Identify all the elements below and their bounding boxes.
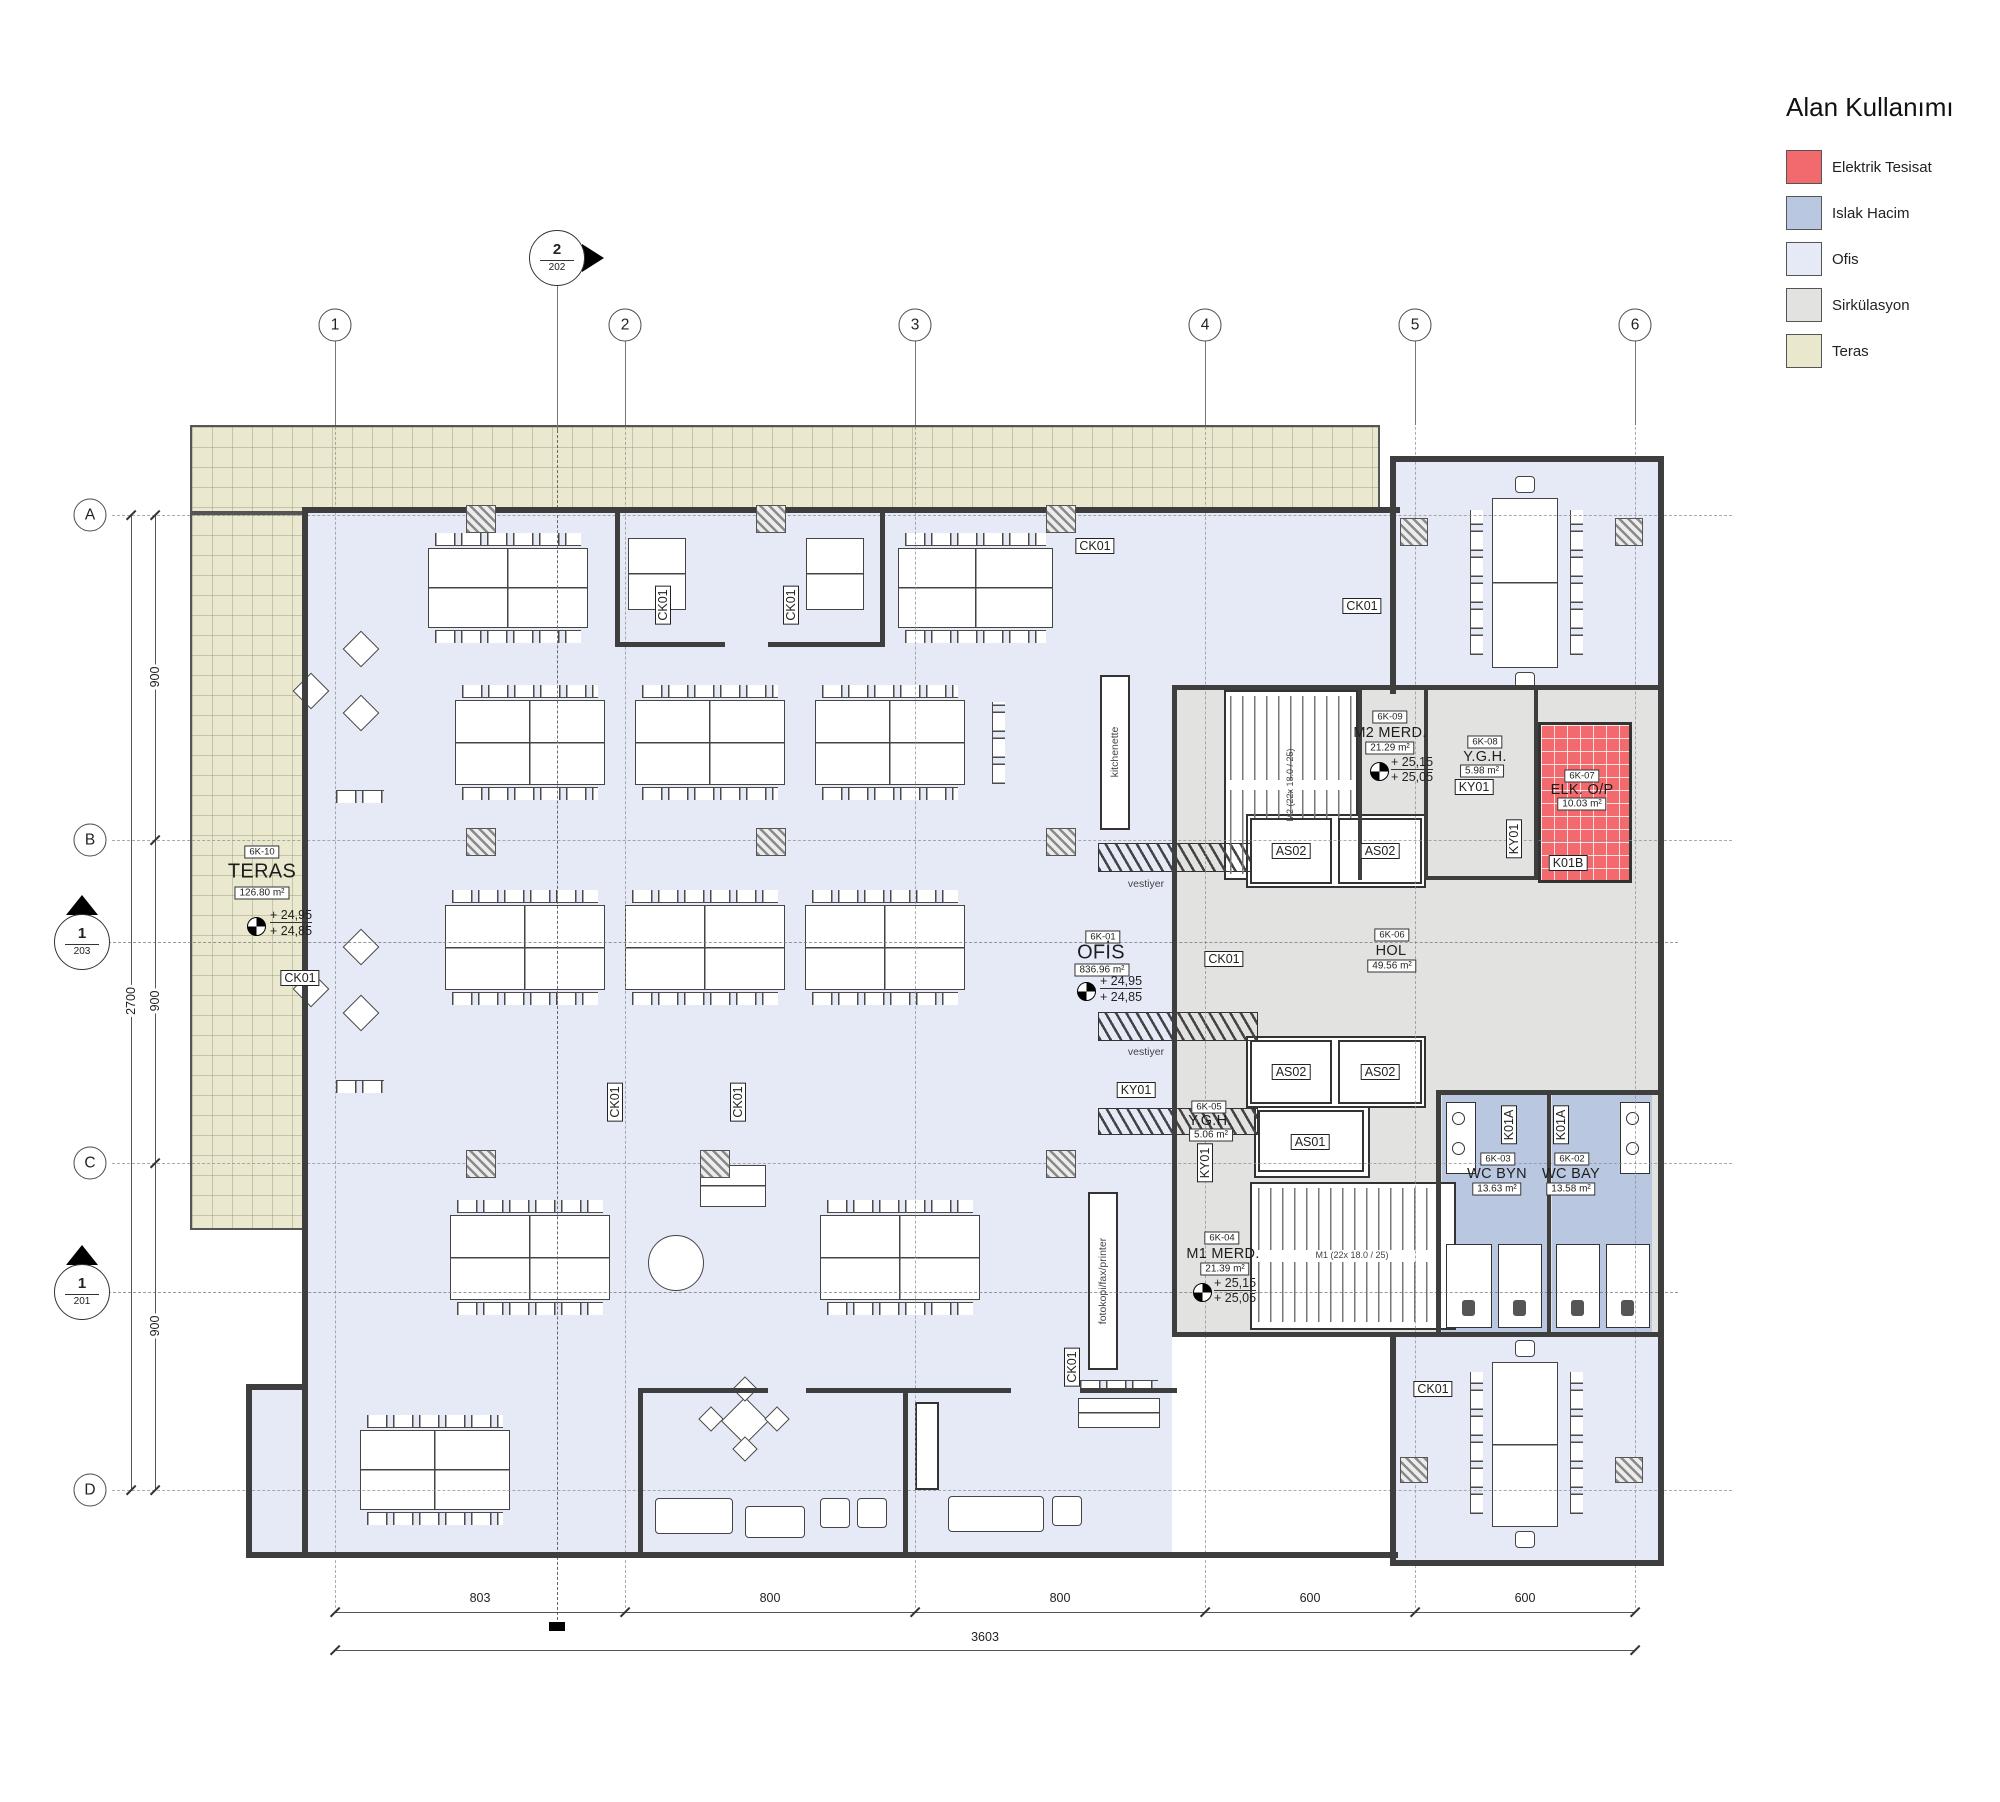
chair-row [1470,1372,1483,1514]
room-wall [1424,690,1428,880]
section-sheet: 202 [549,261,566,275]
dimension-total-label: 3603 [969,1630,1001,1644]
column-pier [1400,1457,1428,1483]
level-marker-icon [1077,982,1096,1001]
elevation-upper: + 25,15 [1214,1276,1256,1291]
wc-wall [1547,1095,1551,1335]
conference-table [1492,498,1558,668]
section-arrow-icon [66,1245,98,1265]
room-name: WC BAY [1542,1166,1600,1182]
toilet [1621,1300,1634,1316]
dimension-label: 803 [468,1591,493,1605]
room-wall [638,1388,768,1393]
column-pier [1046,505,1076,533]
door-tag: K01B [1549,855,1588,871]
room-wall [1424,876,1538,880]
elevation-lower: + 25,05 [1391,770,1433,784]
room-code: 6K-10 [244,846,279,859]
chair-row [1570,1372,1583,1514]
chair-row [992,702,1005,784]
room-name: M2 MERD. [1353,725,1426,741]
room-name: Y.G.H. [1188,1113,1231,1129]
chair [1515,1531,1535,1548]
door-tag: KY01 [1197,1144,1213,1183]
room-wall [880,507,885,647]
door-tag: CK01 [1342,598,1381,614]
elevator-tag: AS02 [1361,1064,1400,1080]
room-area: 5.98 m² [1460,765,1504,778]
dimension-label: 600 [1513,1591,1538,1605]
column-pier [466,505,496,533]
grid-bubble-C: C [74,1147,107,1180]
section-number: 1 [65,925,100,945]
room-area: 21.29 m² [1365,742,1414,755]
section-number: 2 [540,241,575,261]
desk-cluster [898,548,1053,628]
desk-cluster [820,1215,980,1300]
room-code: 6K-02 [1554,1153,1589,1166]
coat-rack [1098,1012,1258,1041]
dimension-total-label: 2700 [124,985,138,1017]
elevation-upper: + 24,95 [270,908,312,923]
sink [1452,1142,1465,1155]
door-tag: K01A [1501,1106,1517,1145]
section-line-201 [108,1292,1678,1293]
sink [1452,1112,1465,1125]
door-tag: KY01 [1506,820,1522,859]
legend-swatch-elektrik [1786,150,1822,184]
room-name: WC BYN [1467,1166,1527,1182]
legend-label: Ofis [1832,251,1859,268]
door-tag: CK01 [1075,538,1114,554]
coat-rack [1098,1108,1258,1135]
floor-plan-canvas: 1 2 3 4 5 6 A B C D 2 202 1 203 1 201 [0,0,2000,1802]
section-marker-201: 1 201 [54,1264,110,1320]
wall-segment [302,507,308,1558]
room-wall [806,1388,1011,1393]
stair-note-m2: M2 (22x 18.0 / 25) [1285,748,1295,821]
copier-label: fotokopi/fax/printer [1097,1238,1109,1324]
wall-segment [1390,1332,1396,1566]
level-marker-icon [1370,762,1389,781]
office-desk [806,538,864,610]
room-code: 6K-03 [1480,1153,1515,1166]
grid-line-4 [1205,342,1206,1608]
wall-segment [1390,456,1664,462]
column-pier [1046,1150,1076,1178]
level-marker-icon [247,917,266,936]
elevation-upper: + 25,15 [1391,755,1433,770]
dimension-label: 900 [148,1314,162,1339]
legend-swatch-sirkulasyon [1786,288,1822,322]
elevation-lower: + 24,85 [270,924,312,938]
section-number: 1 [65,1275,100,1295]
door-tag: CK01 [730,1082,746,1121]
level-marker-icon [1193,1283,1212,1302]
grid-bubble-5: 5 [1399,309,1432,342]
legend-title: Alan Kullanımı [1786,92,1954,123]
room-wall [1534,690,1538,880]
room-area: 21.39 m² [1200,1263,1249,1276]
elevator-tag: AS02 [1361,843,1400,859]
stair-note-m1: M1 (22x 18.0 / 25) [1315,1250,1388,1260]
grid-stem [1635,341,1636,425]
grid-bubble-4: 4 [1189,309,1222,342]
column-pier [1046,828,1076,856]
legend-label: Teras [1832,343,1869,360]
desk-cluster [445,905,605,990]
section-arrow-icon [66,895,98,915]
desk-cluster [450,1215,610,1300]
room-code: 6K-09 [1372,711,1407,724]
grid-bubble-3: 3 [899,309,932,342]
door-tag: K01A [1553,1106,1569,1145]
column-pier [756,505,786,533]
wc-wall [1436,1090,1441,1335]
dimension-line [335,1650,1635,1651]
sink [1626,1112,1639,1125]
room-code: 6K-07 [1564,770,1599,783]
door-tag: CK01 [607,1082,623,1121]
chair-row [336,790,384,803]
wall-segment [1390,456,1396,694]
grid-line-B [112,840,1732,841]
chair [1515,1340,1535,1357]
room-wall [638,1388,643,1556]
grid-line-D [112,1490,1732,1491]
wall-segment [1390,1560,1664,1566]
chair-row [336,1080,384,1093]
dimension-label: 900 [148,665,162,690]
legend-swatch-teras [1786,334,1822,368]
core-wall [1172,685,1177,1337]
sofa [745,1506,805,1538]
grid-stem [335,341,336,425]
legend-label: Islak Hacim [1832,205,1910,222]
desk-cluster [805,905,965,990]
door-tag: KY01 [1455,779,1494,795]
column-pier [1400,518,1428,546]
kitchenette-label: kitchenette [1109,727,1121,778]
elevator-tag: AS01 [1291,1134,1330,1150]
vestiyer-label: vestiyer [1128,878,1164,890]
door-tag: KY01 [1117,1082,1156,1098]
room-name: TERAS [228,861,296,884]
sofa [655,1498,733,1534]
wall-segment [1658,456,1664,1566]
legend-swatch-ofis [1786,242,1822,276]
column-pier [1615,1457,1643,1483]
legend-swatch-islak [1786,196,1822,230]
armchair [1052,1496,1082,1526]
grid-bubble-2: 2 [609,309,642,342]
room-area: 49.56 m² [1367,960,1416,973]
room-code: 6K-06 [1374,929,1409,942]
desk-cluster [360,1430,510,1510]
toilet [1571,1300,1584,1316]
dimension-label: 800 [758,1591,783,1605]
wall-segment [246,1552,1398,1558]
core-wall [1172,1332,1664,1337]
grid-bubble-A: A [74,499,107,532]
dimension-label: 800 [1048,1591,1073,1605]
section-line-end-marker [549,1622,565,1631]
room-wall [615,642,725,647]
grid-bubble-1: 1 [319,309,352,342]
section-sheet: 203 [74,945,91,959]
room-code: 6K-08 [1467,736,1502,749]
vestiyer-label: vestiyer [1128,1046,1164,1058]
toilet [1462,1300,1475,1316]
door-tag: CK01 [655,585,671,624]
grid-line-A [112,515,1732,516]
stair-flight [1258,1188,1448,1250]
chair-row [1470,510,1483,655]
wall-segment [246,1384,308,1390]
door-tag: CK01 [783,585,799,624]
door-tag: CK01 [1064,1347,1080,1386]
dimension-label: 900 [148,989,162,1014]
legend-label: Elektrik Tesisat [1832,159,1932,176]
elevation-lower: + 25,05 [1214,1291,1256,1305]
room-area: 13.58 m² [1546,1183,1595,1196]
grid-stem [915,341,916,425]
room-wall [615,507,620,647]
column-pier [700,1150,730,1178]
grid-stem [1415,341,1416,425]
room-name: ELK. O/P [1551,782,1614,798]
armchair [820,1498,850,1528]
core-wall [1172,685,1664,690]
grid-bubble-6: 6 [1619,309,1652,342]
room-name: Y.G.H. [1463,749,1506,765]
elevator-tag: AS02 [1272,1064,1311,1080]
cabinet [915,1402,939,1490]
desk-cluster [428,548,588,628]
column-pier [466,828,496,856]
elevation-lower: + 24,85 [1100,990,1142,1004]
toilet [1513,1300,1526,1316]
room-name: OFİS [1077,942,1125,965]
dimension-label: 600 [1298,1591,1323,1605]
desk-cluster [625,905,785,990]
room-name: HOL [1376,943,1407,959]
section-arrow-icon [582,244,604,272]
desk-cluster [455,700,605,785]
room-area: 10.03 m² [1557,798,1606,811]
column-pier [1615,518,1643,546]
room-code: 6K-04 [1204,1232,1239,1245]
grid-bubble-B: B [74,824,107,857]
door-tag: CK01 [280,970,319,986]
room-area: 5.06 m² [1189,1129,1233,1142]
wall-segment [246,1384,252,1558]
grid-stem [625,341,626,425]
desk-cluster [635,700,785,785]
section-stem [557,285,558,431]
column-pier [466,1150,496,1178]
section-line-203 [108,942,1678,943]
room-wall [1080,1388,1177,1393]
room-area: 13.63 m² [1472,1183,1521,1196]
chair [1515,476,1535,493]
grid-line-1 [335,342,336,1608]
conference-table [1492,1362,1558,1527]
dimension-line [335,1612,1635,1613]
room-name: M1 MERD. [1186,1246,1259,1262]
elevator-tag: AS02 [1272,843,1311,859]
section-line-202 [557,430,558,1620]
sofa [948,1496,1044,1532]
table [1078,1398,1160,1428]
door-tag: CK01 [1413,1381,1452,1397]
teras-strip-fill [190,425,1380,513]
sink [1626,1142,1639,1155]
door-tag: CK01 [1204,951,1243,967]
section-marker-203: 1 203 [54,914,110,970]
room-wall [768,642,885,647]
grid-line-2 [625,342,626,1608]
armchair [857,1498,887,1528]
room-code: 6K-05 [1191,1101,1226,1114]
grid-stem [1205,341,1206,425]
chair-row [1570,510,1583,655]
section-sheet: 201 [74,1295,91,1309]
room-wall [903,1388,908,1556]
grid-line-3 [915,342,916,1608]
grid-bubble-D: D [74,1474,107,1507]
desk-cluster [815,700,965,785]
round-table [648,1235,704,1291]
column-pier [756,828,786,856]
elevation-upper: + 24,95 [1100,974,1142,989]
section-marker-202: 2 202 [529,230,585,286]
legend-label: Sirkülasyon [1832,297,1910,314]
room-area: 126.80 m² [234,887,289,900]
ofis-step-fill [250,1390,308,1558]
